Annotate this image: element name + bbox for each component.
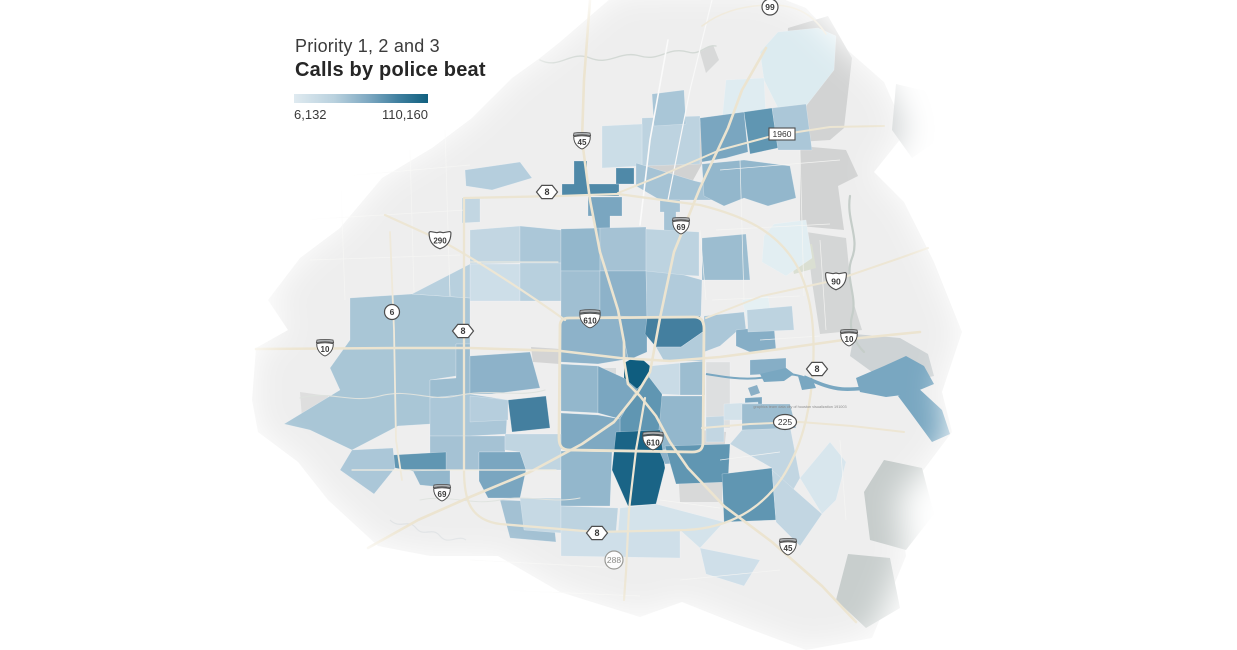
- svg-text:45: 45: [784, 544, 793, 553]
- svg-text:99: 99: [765, 2, 775, 12]
- svg-text:610: 610: [646, 438, 660, 447]
- svg-text:225: 225: [778, 417, 792, 427]
- svg-text:graphics team data city of ho: graphics team data city of houston visua…: [753, 405, 846, 409]
- svg-text:290: 290: [433, 236, 447, 245]
- svg-text:610: 610: [583, 316, 597, 325]
- svg-text:45: 45: [578, 138, 587, 147]
- svg-text:90: 90: [831, 277, 841, 287]
- svg-text:288: 288: [607, 555, 621, 565]
- svg-text:1960: 1960: [773, 129, 792, 139]
- svg-text:10: 10: [321, 345, 330, 354]
- svg-text:10: 10: [845, 335, 854, 344]
- svg-text:69: 69: [677, 223, 686, 232]
- svg-text:69: 69: [438, 490, 447, 499]
- svg-text:6: 6: [390, 307, 395, 317]
